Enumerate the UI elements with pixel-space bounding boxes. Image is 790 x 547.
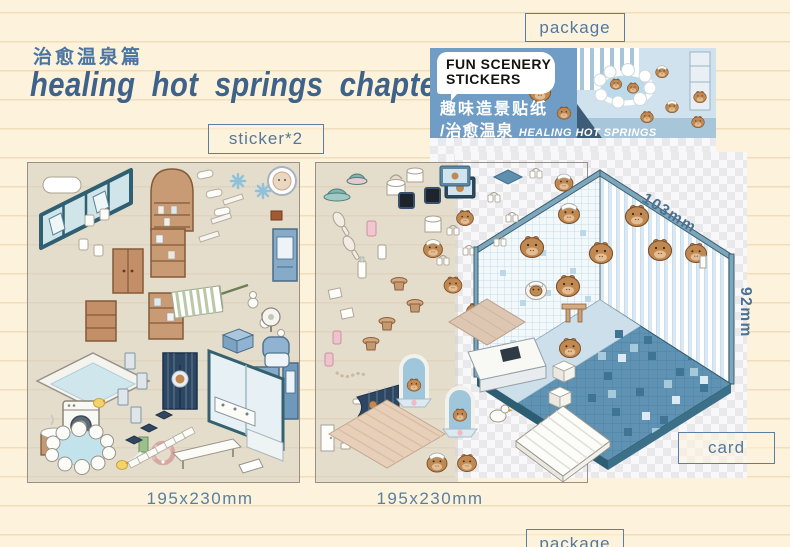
cloud-sticker — [43, 177, 81, 193]
sheet2-stickers — [316, 163, 587, 482]
milk-bottle-stickers — [437, 226, 475, 266]
wall-tv-sticker — [445, 177, 475, 198]
tatami-mat-sticker — [329, 400, 445, 468]
armchair-sticker — [263, 337, 289, 367]
paper-stickers — [328, 288, 354, 319]
bead-sticker — [337, 373, 367, 377]
door-sticker — [321, 425, 334, 451]
towel-roll-stickers — [197, 169, 231, 216]
banner-series: /治愈温泉 HEALING HOT SPRINGS — [440, 117, 657, 138]
round-mirror-sticker — [268, 167, 296, 195]
brush-stickers — [331, 210, 363, 262]
storage-box-sticker — [223, 329, 253, 353]
card-height-label: 92mm — [736, 287, 754, 338]
noren-curtain-sticker — [163, 353, 197, 409]
sheet1-size-label: 195x230mm — [130, 489, 270, 509]
sticker-sheet-1 — [27, 162, 300, 483]
brand-line2: STICKERS — [446, 72, 555, 87]
banner-product-cn: 趣味造景贴纸 — [440, 95, 548, 119]
page-title: healing hot springs chapter — [30, 66, 448, 105]
bench-sticker — [173, 439, 241, 469]
subtitle-cn: 治愈温泉篇 — [33, 42, 143, 69]
label-package-top: package — [525, 13, 625, 42]
onsen-hat-stickers — [324, 174, 367, 201]
label-card: card — [678, 432, 775, 464]
striped-mat-sticker — [172, 286, 223, 318]
stool-stickers — [363, 278, 423, 351]
product-page: 治愈温泉篇 healing hot springs chapter packag… — [0, 0, 790, 547]
plant-stickers — [231, 174, 270, 198]
box-sticker — [271, 211, 282, 220]
banner-series-en: HEALING HOT SPRINGS — [519, 127, 657, 138]
sheet2-size-label: 195x230mm — [360, 489, 500, 509]
label-sticker-count: sticker*2 — [208, 124, 324, 154]
package-banner: FUN SCENERY STICKERS 趣味造景贴纸 /治愈温泉 HEALIN… — [430, 48, 716, 138]
corner-shelf-sticker — [239, 459, 263, 473]
label-package-bottom: package — [526, 529, 624, 547]
soap-strip-stickers — [199, 194, 244, 242]
speech-bubble: FUN SCENERY STICKERS — [437, 52, 555, 94]
sticker-sheet-2 — [315, 162, 588, 483]
banner-series-cn: /治愈温泉 — [440, 123, 513, 138]
sheet1-stickers — [28, 163, 299, 482]
brand-line1: FUN SCENERY — [446, 57, 555, 72]
arched-shelf-sticker — [151, 169, 193, 231]
